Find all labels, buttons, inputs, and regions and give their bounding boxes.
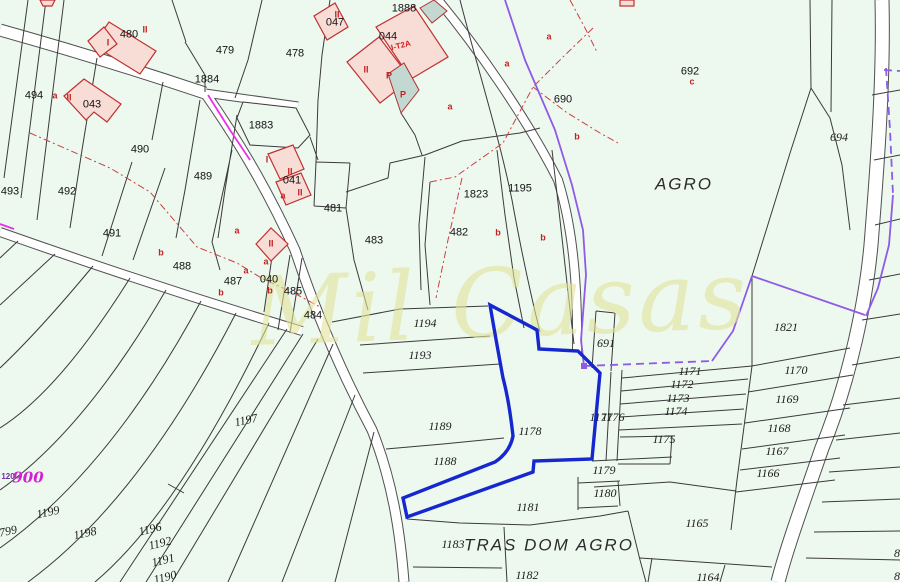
cadastral-map-canvas: Mil Casas — [0, 0, 900, 582]
building-top-edge — [40, 0, 55, 6]
building-top-right — [620, 0, 634, 6]
cadastral-map: Mil Casas 480479478188418830471888044043… — [0, 0, 900, 582]
boundary-node — [581, 363, 587, 369]
